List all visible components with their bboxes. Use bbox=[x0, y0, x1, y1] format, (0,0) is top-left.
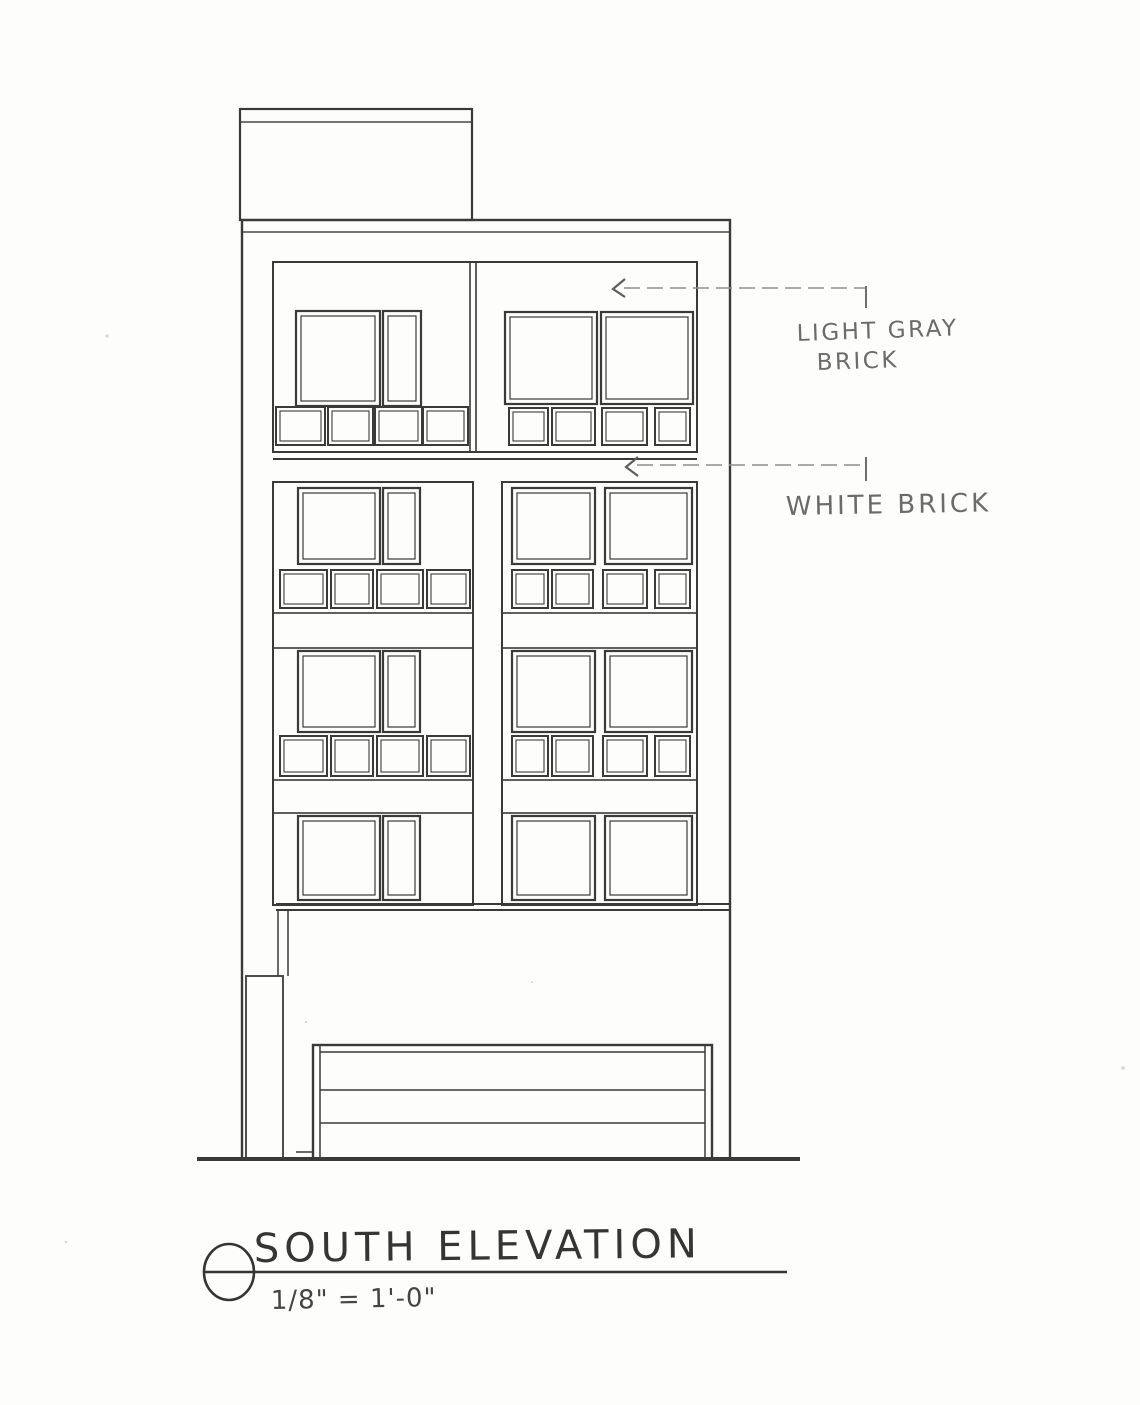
window-small bbox=[280, 736, 327, 776]
garage-door-frame bbox=[313, 1045, 712, 1159]
window-small bbox=[427, 570, 470, 608]
brick-pier bbox=[246, 976, 283, 1159]
window-large bbox=[505, 312, 597, 404]
window-small bbox=[280, 570, 327, 608]
window-small bbox=[655, 408, 690, 445]
window-small bbox=[603, 570, 647, 608]
window-small bbox=[655, 570, 690, 608]
drawing-sheet: LIGHT GRAY BRICK WHITE BRICK SOUTH ELEVA… bbox=[0, 0, 1140, 1405]
window-small bbox=[276, 407, 325, 445]
arrow-left-icon bbox=[613, 279, 625, 297]
parapet-coping bbox=[242, 220, 730, 232]
material-note: WHITE BRICK bbox=[786, 488, 992, 522]
elevation-drawing: LIGHT GRAY BRICK WHITE BRICK SOUTH ELEVA… bbox=[0, 0, 1140, 1405]
window-large bbox=[605, 488, 692, 564]
window-small bbox=[512, 570, 548, 608]
garage-door-panels bbox=[320, 1052, 705, 1123]
window-large bbox=[512, 488, 595, 564]
drawing-title: SOUTH ELEVATION bbox=[254, 1221, 702, 1272]
window-small bbox=[512, 736, 548, 776]
window-small bbox=[375, 407, 422, 445]
window-small bbox=[427, 736, 470, 776]
window-small bbox=[509, 408, 548, 445]
window-small bbox=[552, 408, 595, 445]
window-small bbox=[552, 570, 593, 608]
window-small bbox=[602, 408, 647, 445]
window-small bbox=[377, 736, 423, 776]
bulkhead-coping bbox=[240, 109, 472, 122]
window-small bbox=[655, 736, 690, 776]
window-small bbox=[603, 736, 647, 776]
window-large bbox=[601, 312, 693, 404]
window-small bbox=[423, 407, 468, 445]
floor-band-line bbox=[273, 452, 697, 459]
window-small bbox=[331, 570, 373, 608]
garage-door-jambs bbox=[320, 1045, 705, 1159]
window-large bbox=[298, 488, 380, 564]
drawing-scale: 1/8" = 1'-0" bbox=[271, 1283, 437, 1316]
window-large bbox=[296, 311, 380, 406]
window-large bbox=[512, 651, 595, 732]
garage-door bbox=[296, 1045, 712, 1159]
ground-floor bbox=[197, 904, 800, 1159]
window-large bbox=[383, 311, 421, 406]
downspout bbox=[278, 910, 288, 976]
roof-bulkhead bbox=[240, 109, 472, 220]
window-small bbox=[331, 736, 373, 776]
window-large bbox=[605, 816, 692, 900]
bulkhead-outline bbox=[240, 109, 472, 220]
window-large bbox=[512, 816, 595, 900]
window-small bbox=[377, 570, 423, 608]
window-small bbox=[552, 736, 593, 776]
window-large bbox=[605, 651, 692, 732]
window-small bbox=[328, 407, 373, 445]
spandrel-band bbox=[502, 780, 697, 813]
paper-specks bbox=[65, 334, 1125, 1243]
window-large bbox=[298, 816, 380, 900]
material-note: BRICK bbox=[816, 347, 899, 376]
second-floor-line bbox=[276, 904, 730, 910]
spandrel-band bbox=[273, 613, 473, 648]
spandrel-band bbox=[502, 613, 697, 648]
title-block: SOUTH ELEVATION 1/8" = 1'-0" bbox=[203, 1221, 787, 1316]
window-large bbox=[298, 651, 380, 732]
spandrel-band bbox=[273, 780, 473, 813]
panel-divider bbox=[470, 262, 476, 452]
material-note: LIGHT GRAY bbox=[796, 315, 959, 347]
